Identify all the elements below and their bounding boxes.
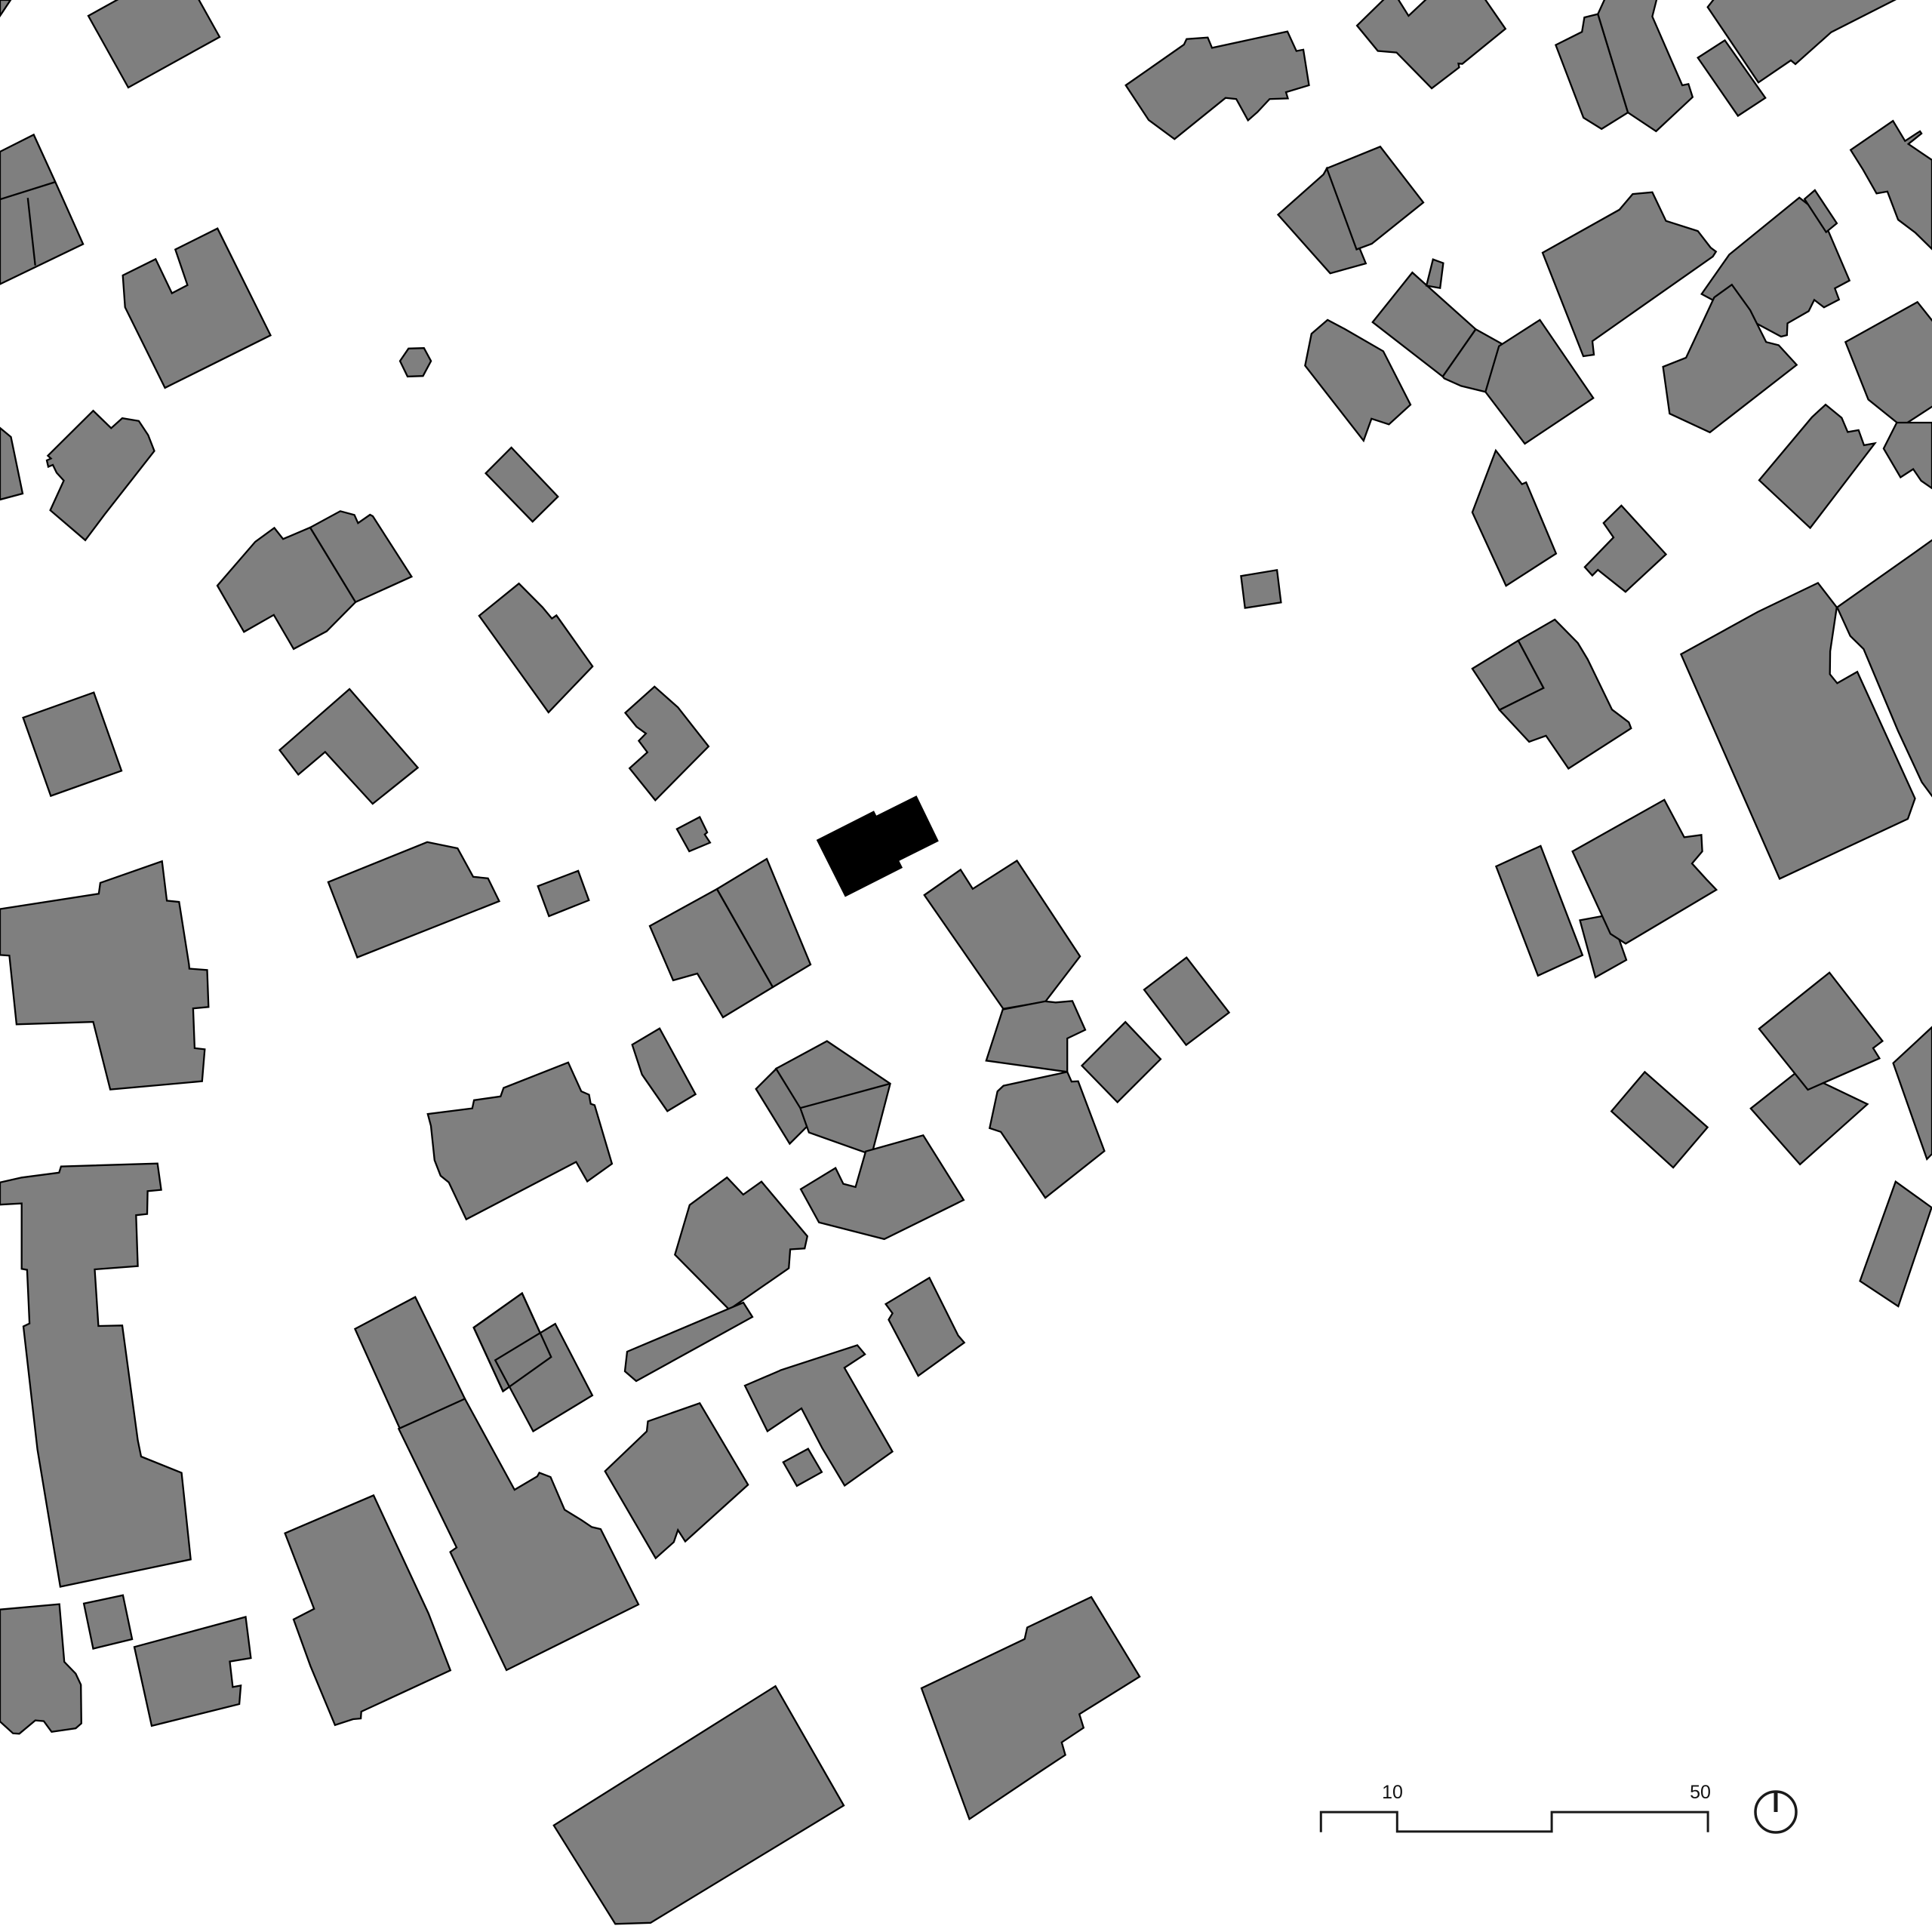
svg-text:10: 10 (1382, 1782, 1403, 1803)
svg-text:50: 50 (1690, 1782, 1711, 1803)
